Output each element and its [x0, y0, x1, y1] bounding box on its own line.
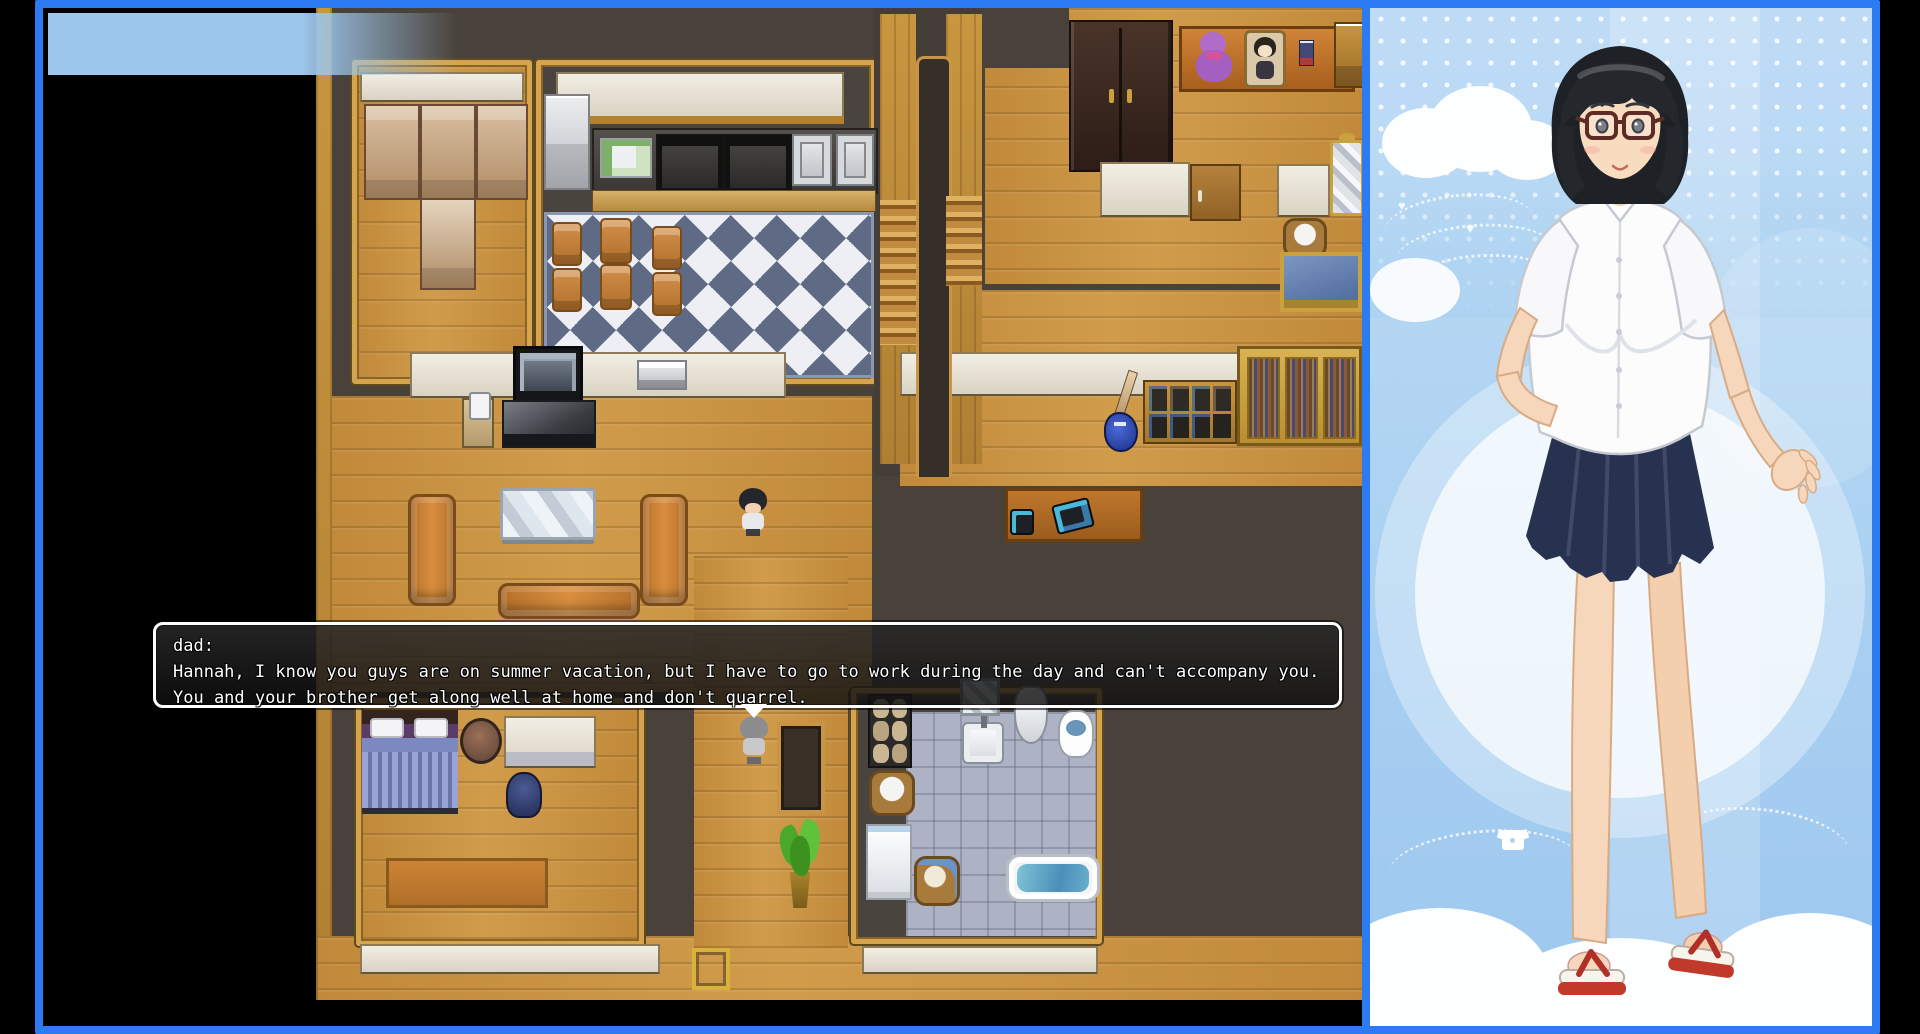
- wall-sink: [962, 722, 1004, 764]
- sideboard: [1277, 164, 1330, 217]
- portrait-girl: [1370, 8, 1872, 1026]
- desk-chair: [506, 772, 542, 818]
- game-screen: dad: Hannah, I know you guys are on summ…: [0, 0, 1920, 1034]
- television: [513, 346, 583, 404]
- laundry-basket: [869, 770, 915, 816]
- room-door: [1190, 164, 1241, 221]
- flip-flop-right: [1667, 928, 1738, 979]
- character-portrait-panel: ♥ ♥ ♥: [1370, 8, 1872, 1026]
- dialogue-continue-arrow-icon[interactable]: [741, 704, 767, 718]
- round-stool: [460, 718, 502, 764]
- wardrobe: [1069, 20, 1173, 172]
- paper-cabinet: [476, 104, 528, 200]
- book: [1299, 40, 1314, 66]
- sofa: [498, 583, 640, 619]
- lower-cabinets: [592, 190, 876, 212]
- bookcase: [1237, 346, 1362, 446]
- potted-plant: [778, 818, 822, 912]
- dialogue-speaker: dad:: [173, 633, 1322, 659]
- npc-dad: [739, 716, 769, 764]
- kitchen-chair: [652, 272, 682, 316]
- kitchen-sink: [836, 134, 874, 186]
- baseboard: [360, 944, 660, 974]
- small-cabinet: [1334, 22, 1364, 88]
- entry-door-marker: [692, 948, 730, 990]
- stair-steps: [946, 196, 982, 286]
- tv-table: [502, 400, 596, 448]
- kitchen-chair: [600, 218, 632, 264]
- doll-portrait: [1244, 30, 1286, 88]
- kitchen-chair: [600, 264, 632, 310]
- bedroom2-wall: [985, 8, 1069, 68]
- toilet: [1058, 710, 1094, 758]
- flip-flop-left: [1558, 952, 1626, 995]
- drawer-unit: [637, 360, 687, 390]
- kitchen-chair: [552, 222, 582, 266]
- stove: [724, 134, 792, 190]
- location-banner: [48, 13, 458, 75]
- dialogue-box[interactable]: dad: Hannah, I know you guys are on summ…: [153, 622, 1342, 708]
- armchair: [408, 494, 456, 606]
- dialogue-line-1: Hannah, I know you guys are on summer va…: [173, 659, 1322, 685]
- cutting-board: [600, 138, 652, 178]
- baseboard: [862, 946, 1098, 974]
- kitchen-chair: [652, 226, 682, 270]
- media-shelf: [1143, 380, 1237, 444]
- washing-machine: [866, 824, 912, 900]
- towel-basket: [914, 856, 960, 906]
- electric-guitar: [1102, 372, 1146, 450]
- house-left-wood-edge: [316, 8, 332, 1000]
- paper-cabinet: [420, 104, 476, 200]
- coffee-table: [500, 488, 596, 540]
- player-character: [738, 488, 768, 536]
- kitchen-sink: [792, 134, 832, 186]
- hall-door-panel: [777, 722, 825, 814]
- white-desk: [504, 716, 596, 768]
- rug: [386, 858, 548, 908]
- phone-stand: [462, 398, 494, 448]
- sideboard: [1100, 162, 1190, 217]
- range-hood: [556, 72, 844, 118]
- tv-sideboard: [410, 352, 786, 398]
- armchair: [640, 494, 688, 606]
- paper-cabinet: [364, 104, 420, 200]
- console-desk: [1005, 488, 1143, 542]
- kitchen-chair: [552, 268, 582, 312]
- mirror: [1330, 140, 1364, 216]
- refrigerator: [544, 94, 590, 190]
- hood-bar: [556, 116, 844, 124]
- storage-counter: [360, 72, 524, 102]
- bed: [362, 710, 458, 814]
- paper-cabinet: [420, 198, 476, 290]
- bathtub: [1006, 854, 1100, 902]
- stove: [656, 134, 724, 190]
- blue-bed: [1280, 252, 1362, 312]
- stair-steps: [880, 200, 916, 345]
- teddy-bear: [1196, 32, 1232, 86]
